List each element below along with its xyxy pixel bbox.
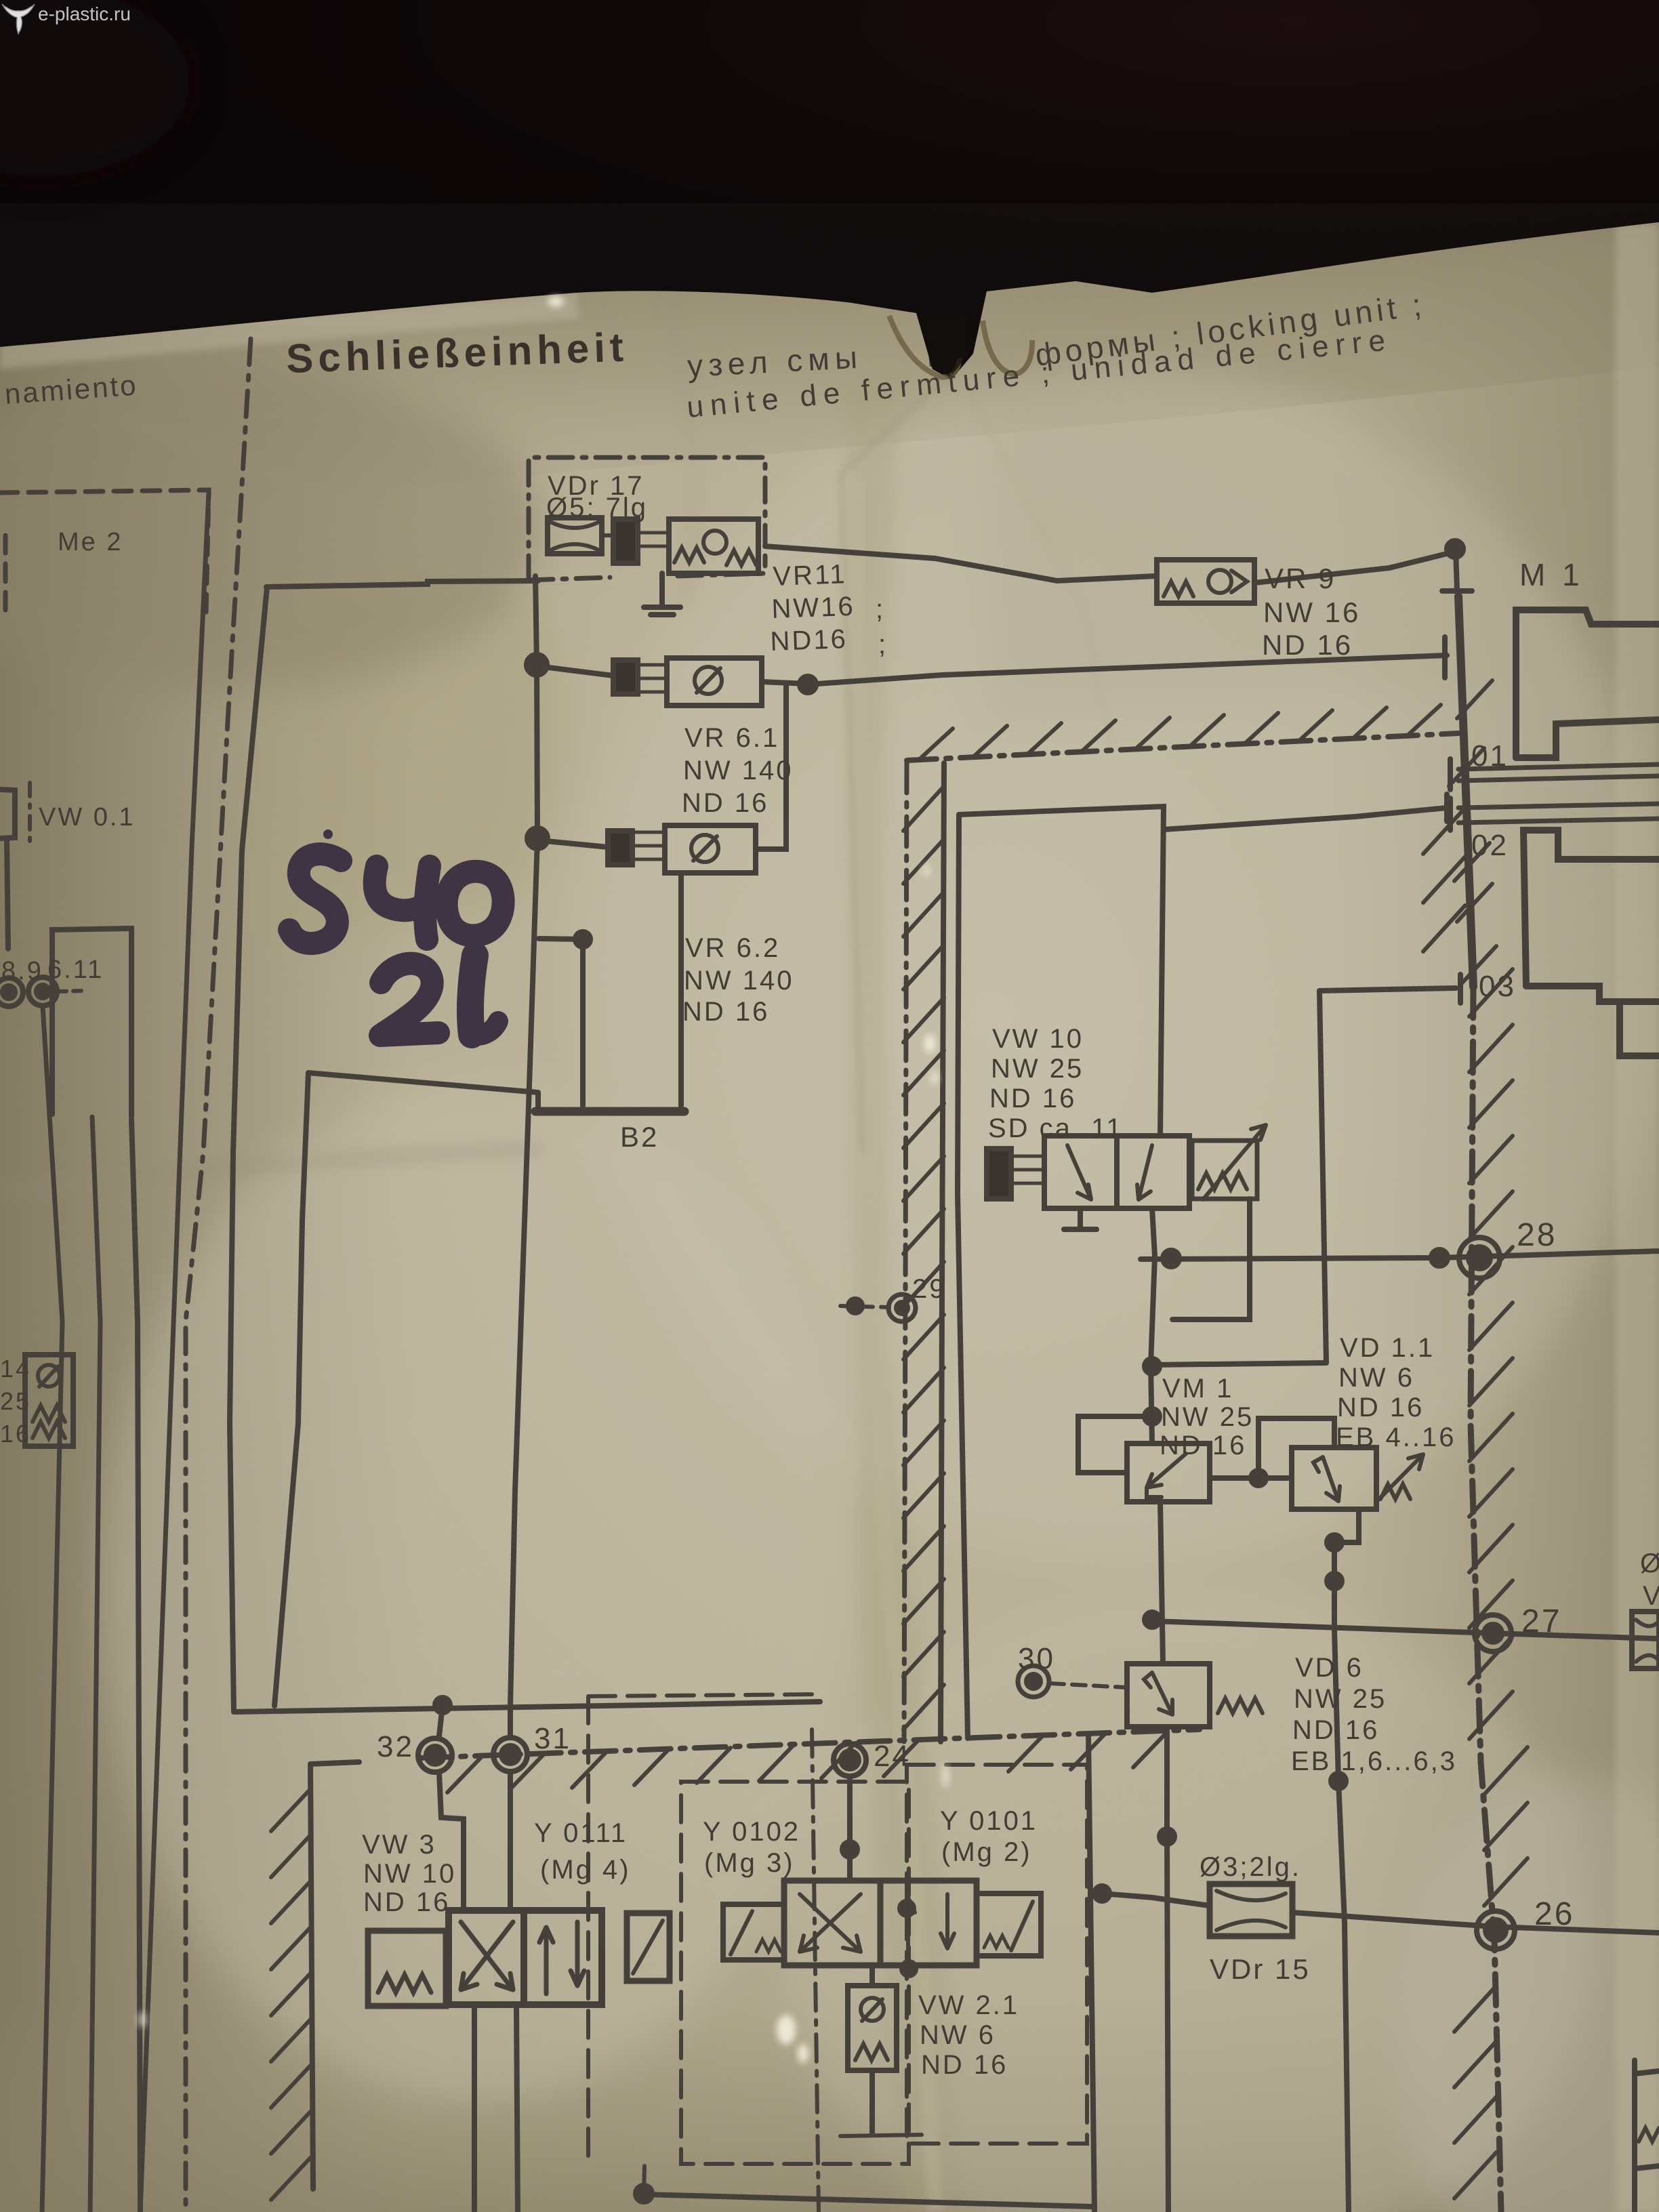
svg-text:EB 4..16: EB 4..16 (1336, 1422, 1456, 1452)
svg-text:24: 24 (874, 1740, 911, 1773)
svg-text:26: 26 (1534, 1896, 1574, 1932)
svg-text:8.9: 8.9 (1, 957, 43, 985)
svg-text:(Mg 3): (Mg 3) (704, 1848, 795, 1878)
svg-text:B2: B2 (620, 1121, 659, 1153)
svg-text:(Mg 4): (Mg 4) (540, 1855, 631, 1885)
svg-text:;: ; (878, 630, 888, 659)
svg-text:ND 16: ND 16 (989, 1084, 1076, 1113)
svg-text:ND 16: ND 16 (682, 997, 769, 1027)
svg-text:ND 16: ND 16 (363, 1887, 450, 1917)
svg-text:VR11: VR11 (773, 559, 848, 592)
svg-text:ND 16: ND 16 (1160, 1431, 1246, 1460)
svg-text:30: 30 (1018, 1642, 1055, 1675)
svg-text:ND 16: ND 16 (1262, 629, 1353, 661)
svg-text:NW 16: NW 16 (1263, 596, 1360, 628)
svg-text:NW 140: NW 140 (683, 756, 794, 785)
svg-text:16: 16 (0, 1420, 31, 1448)
svg-text:ND 16: ND 16 (921, 2050, 1008, 2080)
svg-text:VW 10: VW 10 (992, 1024, 1084, 1054)
svg-text:14: 14 (0, 1355, 31, 1382)
svg-text:6.11: 6.11 (47, 956, 104, 984)
svg-text:NW 6: NW 6 (920, 2020, 996, 2050)
svg-text:VR 6.2: VR 6.2 (685, 933, 780, 963)
svg-text:VDr 15: VDr 15 (1210, 1953, 1311, 1985)
svg-text:Y 0101: Y 0101 (940, 1806, 1038, 1836)
svg-text:32: 32 (377, 1730, 414, 1763)
svg-text:29: 29 (912, 1274, 947, 1304)
svg-text:VD 6: VD 6 (1295, 1653, 1364, 1683)
svg-text:EB 1,6...6,3: EB 1,6...6,3 (1291, 1746, 1457, 1776)
svg-text:VR 9: VR 9 (1265, 562, 1336, 594)
svg-text:NW 10: NW 10 (363, 1859, 456, 1889)
svg-text:NW16: NW16 (771, 592, 856, 624)
svg-text:(Mg 2): (Mg 2) (941, 1837, 1032, 1867)
svg-text:Y 0111: Y 0111 (534, 1818, 628, 1848)
svg-text:NW 25: NW 25 (1294, 1684, 1387, 1714)
svg-text:Ø5; 7lg: Ø5; 7lg (546, 493, 648, 523)
svg-text:Me 2: Me 2 (58, 528, 123, 556)
svg-text:28: 28 (1517, 1217, 1557, 1253)
svg-text:Ø: Ø (1640, 1549, 1659, 1578)
svg-text:VW 3: VW 3 (362, 1830, 436, 1860)
svg-text:02: 02 (1471, 829, 1509, 862)
svg-text:VR 6.1: VR 6.1 (684, 723, 779, 753)
svg-text:NW 25: NW 25 (991, 1054, 1084, 1084)
svg-text:NW 6: NW 6 (1338, 1363, 1414, 1393)
svg-text:ND 16: ND 16 (1292, 1715, 1379, 1745)
svg-text:M 1: M 1 (1519, 557, 1584, 592)
svg-text:VD 1.1: VD 1.1 (1340, 1333, 1435, 1363)
svg-text:VW 0.1: VW 0.1 (39, 803, 136, 832)
svg-text:01: 01 (1471, 739, 1509, 773)
svg-text:NW 140: NW 140 (684, 966, 794, 996)
svg-text:ND16: ND16 (770, 624, 848, 657)
svg-text:31: 31 (534, 1722, 571, 1755)
svg-text:Ø3;2lg.: Ø3;2lg. (1200, 1852, 1301, 1882)
svg-text:VW 2.1: VW 2.1 (918, 1990, 1019, 2020)
svg-text:ND 16: ND 16 (1337, 1393, 1424, 1422)
svg-text:e-plastic.ru: e-plastic.ru (38, 3, 131, 24)
svg-text:Y 0102: Y 0102 (703, 1817, 800, 1847)
svg-text:27: 27 (1521, 1603, 1561, 1639)
svg-text:03: 03 (1479, 970, 1516, 1003)
svg-text:VM 1: VM 1 (1162, 1374, 1233, 1404)
svg-text:ND 16: ND 16 (682, 788, 769, 818)
svg-text:25: 25 (0, 1387, 31, 1415)
svg-text:NW 25: NW 25 (1161, 1402, 1254, 1432)
svg-text:SD ca. 11: SD ca. 11 (988, 1113, 1124, 1143)
svg-text:;: ; (876, 594, 885, 624)
svg-text:V: V (1643, 1581, 1659, 1611)
